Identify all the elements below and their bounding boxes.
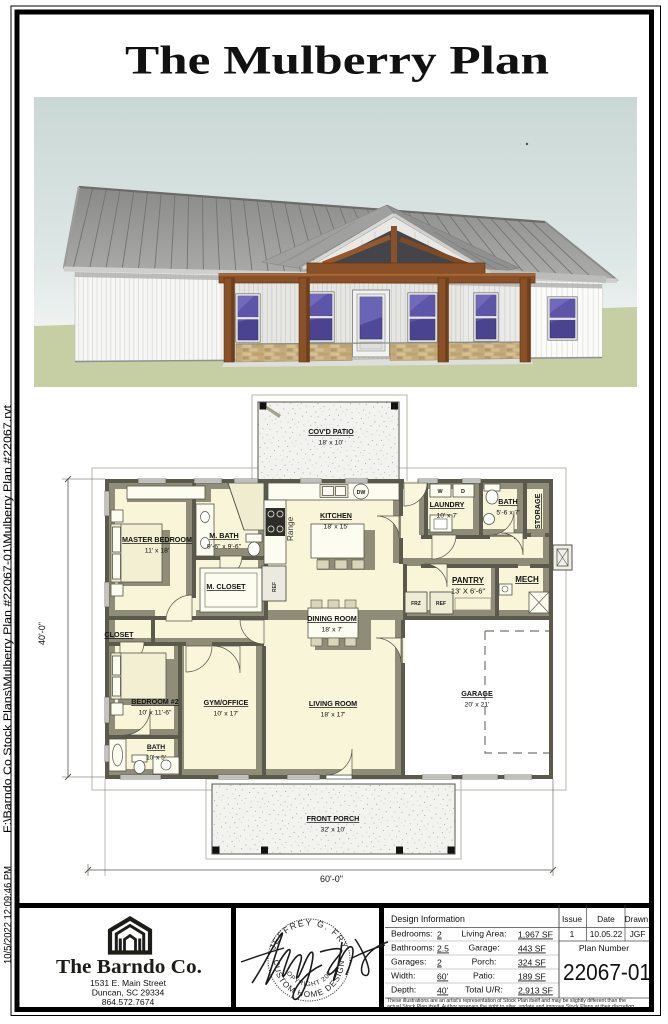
svg-text:10' x 17': 10' x 17' bbox=[214, 711, 239, 718]
svg-text:Garage:: Garage: bbox=[468, 943, 499, 953]
svg-text:443 SF: 443 SF bbox=[518, 944, 546, 954]
svg-text:Porch:: Porch: bbox=[472, 957, 497, 967]
svg-text:The Barndo Co.: The Barndo Co. bbox=[56, 956, 202, 978]
svg-text:11' x 18': 11' x 18' bbox=[145, 548, 169, 555]
svg-text:D: D bbox=[461, 489, 465, 495]
svg-text:2: 2 bbox=[437, 930, 442, 940]
svg-text:Living Area:: Living Area: bbox=[462, 929, 507, 939]
svg-text:18' x 7': 18' x 7' bbox=[321, 627, 342, 634]
svg-text:Issue: Issue bbox=[562, 914, 582, 924]
svg-text:40'-0": 40'-0" bbox=[37, 622, 47, 645]
svg-text:10' x 11'-6": 10' x 11'-6" bbox=[139, 710, 172, 717]
svg-text:FRONT PORCH: FRONT PORCH bbox=[307, 814, 360, 823]
svg-text:BATH: BATH bbox=[147, 744, 165, 751]
svg-text:BEDROOM #2: BEDROOM #2 bbox=[131, 697, 179, 706]
svg-text:MASTER BEDROOM: MASTER BEDROOM bbox=[122, 535, 192, 544]
svg-text:10' x 5': 10' x 5' bbox=[146, 755, 166, 762]
svg-text:DW: DW bbox=[357, 490, 366, 496]
svg-text:10/5/2022 12:09:46 PM: 10/5/2022 12:09:46 PM bbox=[3, 866, 14, 964]
svg-text:9'-6" x 9'-6": 9'-6" x 9'-6" bbox=[207, 544, 242, 551]
svg-text:18' x 17': 18' x 17' bbox=[321, 712, 346, 719]
svg-text:COV'D PATIO: COV'D PATIO bbox=[308, 427, 354, 436]
svg-text:The Mulberry Plan: The Mulberry Plan bbox=[125, 38, 549, 83]
svg-text:20' x 21': 20' x 21' bbox=[465, 702, 490, 709]
svg-text:Bathrooms:: Bathrooms: bbox=[391, 943, 435, 953]
svg-text:13' X 6'-6": 13' X 6'-6" bbox=[451, 587, 486, 596]
svg-text:Duncan, SC 29334: Duncan, SC 29334 bbox=[92, 988, 165, 998]
svg-text:10' x 7': 10' x 7' bbox=[436, 513, 457, 520]
svg-text:10.05.22: 10.05.22 bbox=[590, 929, 623, 939]
svg-text:Date: Date bbox=[597, 914, 615, 924]
svg-text:F:\Barndo Co Stock Plans\Mulbe: F:\Barndo Co Stock Plans\Mulberry Plan #… bbox=[2, 405, 14, 833]
svg-text:Drawn: Drawn bbox=[625, 915, 648, 924]
svg-text:Design Information: Design Information bbox=[391, 914, 465, 924]
svg-text:actual Stock Plan itself. Auth: actual Stock Plan itself. Author reserve… bbox=[387, 1004, 636, 1010]
svg-text:Bedrooms:: Bedrooms: bbox=[391, 929, 433, 939]
svg-text:1531 E. Main Street: 1531 E. Main Street bbox=[90, 978, 167, 988]
svg-text:KITCHEN: KITCHEN bbox=[320, 511, 352, 520]
svg-text:GARAGE: GARAGE bbox=[461, 689, 493, 698]
svg-text:CLOSET: CLOSET bbox=[104, 630, 134, 639]
svg-text:864.572.7674: 864.572.7674 bbox=[102, 997, 155, 1007]
svg-text:REF: REF bbox=[436, 601, 446, 607]
svg-text:LIVING ROOM: LIVING ROOM bbox=[309, 699, 357, 708]
svg-text:5'-6 x 7': 5'-6 x 7' bbox=[496, 510, 519, 517]
svg-text:1,967 SF: 1,967 SF bbox=[518, 930, 553, 940]
svg-text:JGF: JGF bbox=[630, 929, 646, 939]
svg-text:40': 40' bbox=[437, 986, 449, 996]
svg-text:22067-01: 22067-01 bbox=[563, 959, 651, 985]
svg-text:18' x 10': 18' x 10' bbox=[319, 440, 344, 447]
svg-text:MECH: MECH bbox=[515, 575, 539, 584]
svg-text:Plan Number: Plan Number bbox=[579, 943, 629, 953]
svg-text:Range: Range bbox=[286, 516, 295, 541]
svg-text:2.5: 2.5 bbox=[437, 944, 449, 954]
svg-text:Garages:: Garages: bbox=[391, 957, 426, 967]
svg-text:STORAGE: STORAGE bbox=[533, 493, 542, 529]
svg-text:32' x 10': 32' x 10' bbox=[321, 827, 346, 834]
svg-text:Width:: Width: bbox=[391, 971, 415, 981]
svg-text:Depth:: Depth: bbox=[391, 985, 416, 995]
svg-text:60'-0": 60'-0" bbox=[320, 874, 343, 884]
svg-text:1: 1 bbox=[570, 929, 575, 939]
svg-text:FRZ: FRZ bbox=[411, 601, 421, 607]
svg-text:Total U/R:: Total U/R: bbox=[465, 985, 503, 995]
svg-text:M. BATH: M. BATH bbox=[209, 531, 238, 540]
svg-text:M. CLOSET: M. CLOSET bbox=[206, 582, 246, 591]
svg-text:DINING ROOM: DINING ROOM bbox=[307, 614, 357, 623]
svg-text:GYM/OFFICE: GYM/OFFICE bbox=[204, 698, 249, 707]
svg-text:189 SF: 189 SF bbox=[518, 972, 546, 982]
svg-text:LAUNDRY: LAUNDRY bbox=[430, 500, 465, 509]
svg-text:REF: REF bbox=[272, 582, 278, 592]
svg-text:324 SF: 324 SF bbox=[518, 958, 546, 968]
svg-text:60': 60' bbox=[437, 972, 449, 982]
svg-text:2: 2 bbox=[437, 958, 442, 968]
svg-text:18' x 15': 18' x 15' bbox=[324, 524, 349, 531]
svg-text:PANTRY: PANTRY bbox=[452, 576, 485, 585]
svg-text:2,913 SF: 2,913 SF bbox=[518, 986, 553, 996]
svg-text:BATH: BATH bbox=[498, 497, 517, 506]
svg-text:Patio:: Patio: bbox=[473, 971, 495, 981]
